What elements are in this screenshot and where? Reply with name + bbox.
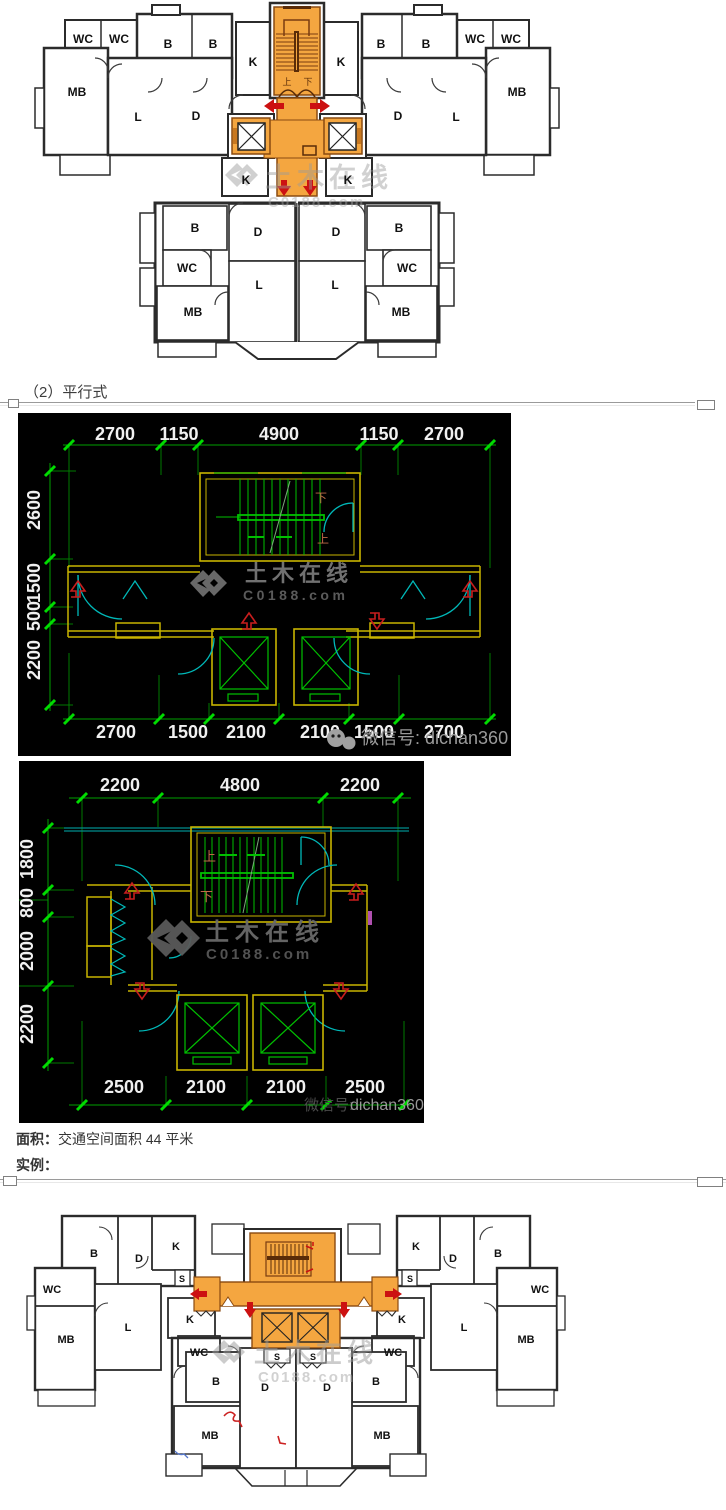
svg-text:下: 下 <box>200 889 213 904</box>
svg-text:B: B <box>422 37 431 51</box>
svg-text:D: D <box>449 1253 457 1265</box>
svg-text:MB: MB <box>392 305 411 319</box>
svg-text:800: 800 <box>19 888 37 918</box>
svg-text:500: 500 <box>24 601 44 631</box>
svg-text:2700: 2700 <box>96 722 136 742</box>
svg-text:MB: MB <box>517 1334 534 1346</box>
svg-text:B: B <box>164 37 173 51</box>
svg-text:土木在线: 土木在线 <box>205 918 325 946</box>
svg-text:1800: 1800 <box>19 839 37 879</box>
svg-text:L: L <box>452 110 459 124</box>
svg-text:土木在线: 土木在线 <box>265 163 393 193</box>
svg-text:微信号:: 微信号: <box>304 1097 353 1114</box>
svg-text:B: B <box>209 37 218 51</box>
svg-text:K: K <box>344 173 353 187</box>
svg-text:D: D <box>261 1382 269 1394</box>
svg-text:K: K <box>337 55 346 69</box>
svg-text:2700: 2700 <box>95 424 135 444</box>
svg-text:4900: 4900 <box>259 424 299 444</box>
svg-text:D: D <box>135 1253 143 1265</box>
svg-text:1150: 1150 <box>359 424 398 444</box>
svg-text:L: L <box>134 110 141 124</box>
svg-text:MB: MB <box>57 1334 74 1346</box>
svg-text:L: L <box>461 1322 468 1334</box>
svg-text:MB: MB <box>508 85 527 99</box>
svg-text:S: S <box>179 1274 185 1284</box>
svg-text:S: S <box>310 1352 316 1362</box>
svg-text:WC: WC <box>501 32 521 46</box>
svg-text:MB: MB <box>373 1430 390 1442</box>
svg-text:B: B <box>372 1376 380 1388</box>
svg-text:K: K <box>398 1314 406 1326</box>
svg-text:微信号: dichan360: 微信号: dichan360 <box>361 728 508 748</box>
svg-text:B: B <box>212 1376 220 1388</box>
svg-text:B: B <box>377 37 386 51</box>
svg-text:WC: WC <box>531 1284 549 1296</box>
svg-text:1150: 1150 <box>159 424 198 444</box>
svg-text:WC: WC <box>109 32 129 46</box>
svg-text:D: D <box>323 1382 331 1394</box>
svg-text:WC: WC <box>384 1347 402 1359</box>
svg-text:WC: WC <box>177 261 197 275</box>
svg-text:C0188.com: C0188.com <box>206 946 312 963</box>
svg-text:S: S <box>274 1352 280 1362</box>
svg-text:C0188.com: C0188.com <box>268 194 365 211</box>
svg-text:WC: WC <box>465 32 485 46</box>
svg-text:4800: 4800 <box>220 775 260 795</box>
svg-text:2100: 2100 <box>186 1077 226 1097</box>
svg-text:下: 下 <box>315 491 327 505</box>
svg-text:B: B <box>191 221 200 235</box>
svg-text:下: 下 <box>303 77 312 87</box>
svg-text:D: D <box>332 225 341 239</box>
svg-text:C0188.com: C0188.com <box>243 587 348 603</box>
svg-text:1500: 1500 <box>24 563 44 603</box>
svg-text:2000: 2000 <box>19 931 37 971</box>
svg-text:WC: WC <box>190 1347 208 1359</box>
svg-text:WC: WC <box>43 1284 61 1296</box>
svg-text:2200: 2200 <box>100 775 140 795</box>
svg-text:K: K <box>186 1314 194 1326</box>
svg-text:MB: MB <box>68 85 87 99</box>
svg-text:1500: 1500 <box>168 722 208 742</box>
svg-text:2700: 2700 <box>424 424 464 444</box>
svg-text:MB: MB <box>201 1430 218 1442</box>
svg-text:L: L <box>331 278 338 292</box>
svg-text:2200: 2200 <box>340 775 380 795</box>
svg-text:2100: 2100 <box>266 1077 306 1097</box>
svg-text:上: 上 <box>203 849 216 864</box>
svg-text:dichan360: dichan360 <box>350 1097 424 1114</box>
svg-text:K: K <box>242 173 251 187</box>
svg-text:上: 上 <box>317 532 329 546</box>
svg-text:WC: WC <box>397 261 417 275</box>
svg-text:B: B <box>395 221 404 235</box>
svg-text:WC: WC <box>73 32 93 46</box>
svg-text:2500: 2500 <box>104 1077 144 1097</box>
svg-text:C0188.com: C0188.com <box>258 1369 355 1386</box>
svg-text:B: B <box>90 1248 98 1260</box>
svg-text:D: D <box>394 109 403 123</box>
svg-text:L: L <box>255 278 262 292</box>
svg-text:K: K <box>412 1241 420 1253</box>
svg-text:2600: 2600 <box>24 490 44 530</box>
svg-text:MB: MB <box>184 305 203 319</box>
svg-text:B: B <box>494 1248 502 1260</box>
svg-text:2100: 2100 <box>226 722 266 742</box>
svg-text:2500: 2500 <box>345 1077 385 1097</box>
svg-text:L: L <box>125 1322 132 1334</box>
svg-text:D: D <box>192 109 201 123</box>
svg-text:D: D <box>254 225 263 239</box>
svg-text:2200: 2200 <box>24 640 44 680</box>
svg-text:S: S <box>407 1274 413 1284</box>
svg-text:K: K <box>249 55 258 69</box>
svg-text:2200: 2200 <box>19 1004 37 1044</box>
svg-text:土木在线: 土木在线 <box>245 561 353 586</box>
svg-text:上: 上 <box>282 77 291 87</box>
svg-text:K: K <box>172 1241 180 1253</box>
